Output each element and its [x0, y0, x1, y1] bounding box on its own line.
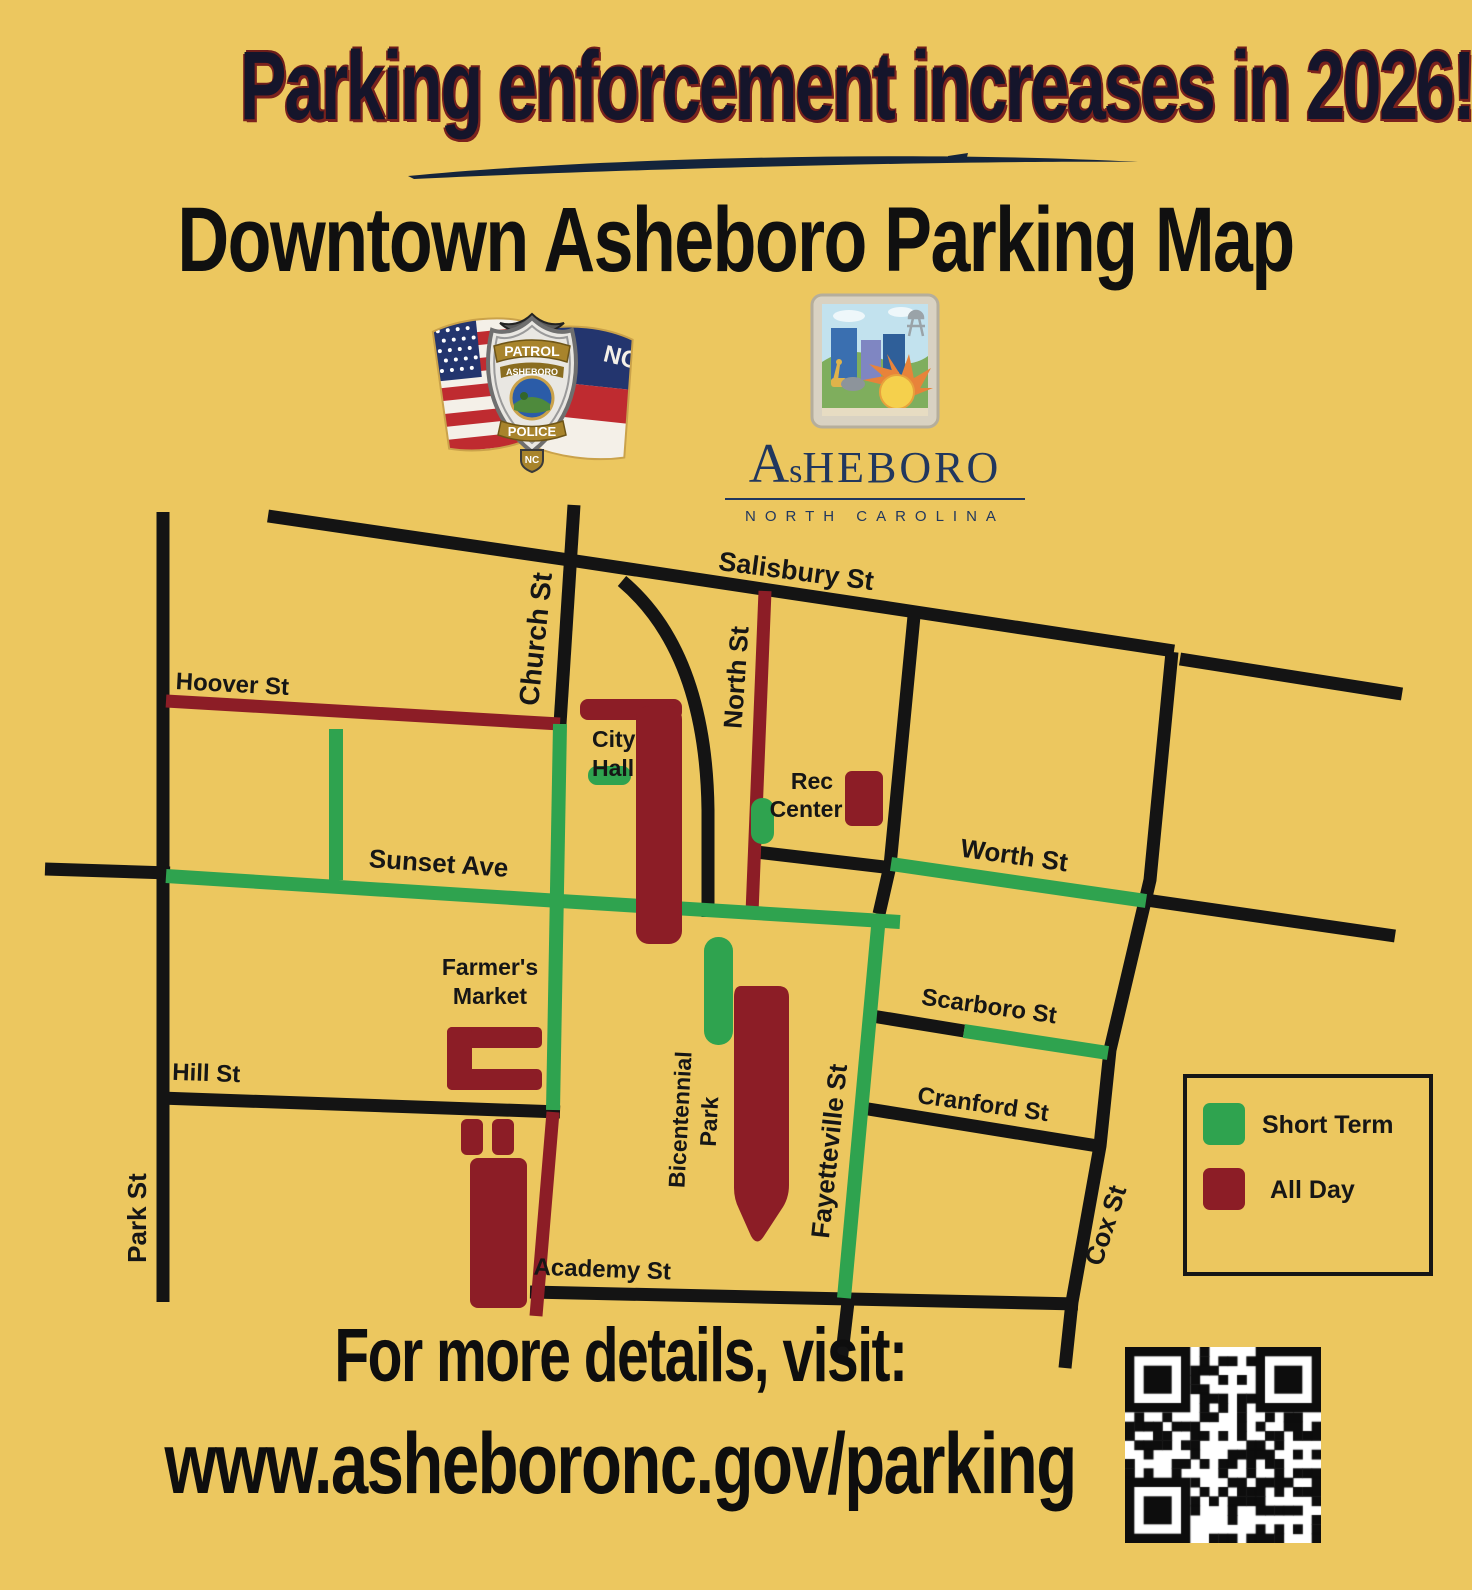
bicentennial-park-lot [734, 986, 789, 1242]
parking-map: Salisbury St Church St North St Hoover S… [0, 490, 1472, 1390]
farmers-market-building [447, 1027, 542, 1090]
road-scarboro-short [964, 1031, 1108, 1053]
parking-flyer: Parking enforcement increases in 2026! D… [0, 0, 1472, 1590]
title-row: Parking enforcement increases in 2026! [0, 30, 1472, 142]
badge-patrol-label: PATROL [504, 343, 560, 359]
label-bicentennial-2: Park [695, 1096, 724, 1147]
small-lot-2 [492, 1119, 514, 1155]
road-church-north [560, 505, 574, 724]
label-rec-center-1: Rec [791, 768, 833, 794]
footer-url[interactable]: www.asheboronc.gov/parking [164, 1415, 1075, 1514]
road-sunset-ave-short [166, 876, 900, 922]
label-hill-st: Hill St [172, 1059, 241, 1088]
page-title: Parking enforcement increases in 2026! [240, 30, 1472, 142]
label-park-st: Park St [122, 1173, 152, 1263]
label-academy-st: Academy St [533, 1254, 671, 1286]
road-church-short [553, 724, 560, 1110]
wordmark-s: s [789, 453, 802, 490]
label-farmers-market-2: Market [453, 983, 527, 1009]
road-connector [756, 852, 893, 868]
label-rec-center-2: Center [770, 796, 843, 822]
wordmark-a: A [749, 433, 789, 495]
police-badge-icon: NC PATROL ASHEBORO POLICE NC [412, 296, 652, 491]
label-church-st: Church St [513, 571, 558, 707]
legend-label-all-day: All Day [1270, 1176, 1355, 1204]
road-north-st-allday [752, 591, 765, 913]
label-north-st: North St [717, 625, 754, 730]
street-labels: Salisbury St Church St North St Hoover S… [122, 546, 1133, 1285]
city-wordmark: AsHEBORO [700, 436, 1050, 492]
label-city-hall-2: Hall [592, 755, 634, 781]
legend: Short Term All Day [1185, 1076, 1431, 1274]
legend-label-short-term: Short Term [1262, 1111, 1394, 1139]
road-academy-st [530, 1292, 1078, 1304]
road-hoover-st-allday [166, 701, 560, 724]
road-salisbury-east [1180, 659, 1402, 694]
road-worth-east [1146, 900, 1395, 936]
city-stamp-icon [809, 292, 941, 432]
small-lot-1 [461, 1119, 483, 1155]
legend-swatch-all-day [1203, 1168, 1245, 1210]
lot-bicentennial-short [704, 937, 733, 1045]
footer-text: For more details, visit: [334, 1312, 906, 1399]
wordmark-rest: HEBORO [802, 443, 1001, 492]
footer: For more details, visit: www.asheboronc.… [0, 1312, 1240, 1514]
academy-building [470, 1158, 527, 1308]
label-farmers-market-1: Farmer's [442, 954, 538, 980]
badge-police-label: POLICE [508, 424, 557, 439]
road-salisbury-st [268, 516, 1174, 651]
badge-nc-label: NC [525, 455, 539, 466]
road-sunset-west [45, 869, 170, 873]
label-bicentennial-1: Bicentennial [663, 1051, 696, 1189]
label-city-hall-1: City [592, 726, 636, 752]
road-church-south-allday [536, 1112, 553, 1316]
qr-code [1125, 1347, 1321, 1543]
road-scarboro-west [872, 1016, 964, 1031]
road-hill-st [160, 1098, 560, 1112]
subtitle-row: Downtown Asheboro Parking Map [0, 188, 1472, 293]
legend-swatch-short-term [1203, 1103, 1245, 1145]
page-subtitle: Downtown Asheboro Parking Map [178, 188, 1294, 293]
underline-swoosh-icon [400, 148, 1145, 188]
label-sunset-ave: Sunset Ave [368, 843, 509, 883]
rec-center-lot [845, 771, 883, 826]
